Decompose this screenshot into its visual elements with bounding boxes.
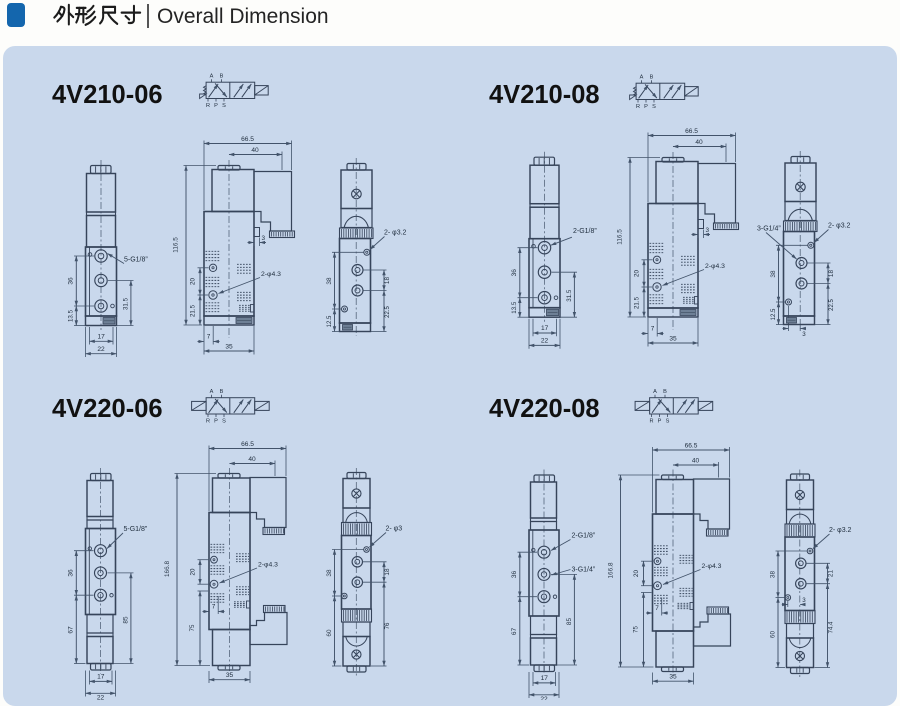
svg-text:36: 36: [511, 571, 518, 579]
svg-text:22: 22: [541, 338, 549, 345]
svg-text:85: 85: [122, 616, 129, 624]
svg-text:21: 21: [827, 570, 834, 578]
svg-text:17: 17: [541, 675, 549, 682]
svg-text:67: 67: [68, 626, 75, 634]
svg-text:40: 40: [692, 458, 700, 465]
svg-text:S: S: [666, 419, 670, 425]
svg-text:17: 17: [98, 334, 106, 341]
svg-text:2-φ4.3: 2-φ4.3: [258, 562, 278, 569]
svg-text:5-G1/8”: 5-G1/8”: [124, 257, 148, 264]
svg-text:38: 38: [326, 277, 333, 285]
svg-text:21.5: 21.5: [190, 304, 197, 317]
svg-text:A: A: [210, 74, 214, 80]
svg-text:3: 3: [262, 235, 266, 242]
svg-text:3-G1/4”: 3-G1/4”: [757, 226, 781, 233]
svg-text:36: 36: [68, 569, 75, 577]
svg-text:P: P: [644, 104, 648, 110]
svg-text:74.4: 74.4: [828, 621, 834, 633]
svg-text:2- φ3.2: 2- φ3.2: [384, 230, 407, 237]
svg-text:P: P: [214, 419, 218, 425]
svg-text:40: 40: [251, 147, 259, 154]
svg-text:18: 18: [828, 270, 835, 278]
svg-text:20: 20: [190, 568, 197, 575]
svg-text:S: S: [222, 419, 226, 425]
svg-text:2-φ4.3: 2-φ4.3: [702, 563, 722, 570]
svg-text:85: 85: [566, 618, 573, 626]
svg-text:R: R: [206, 103, 210, 109]
svg-text:4V210-06: 4V210-06: [52, 81, 163, 109]
svg-text:21.5: 21.5: [634, 296, 641, 309]
svg-text:20: 20: [634, 270, 641, 277]
svg-text:P: P: [214, 103, 218, 109]
svg-text:40: 40: [248, 456, 256, 463]
svg-text:2- φ3.2: 2- φ3.2: [828, 223, 851, 230]
svg-text:22: 22: [540, 696, 548, 700]
svg-text:7: 7: [212, 604, 216, 611]
svg-text:3: 3: [802, 597, 806, 604]
svg-text:3: 3: [802, 331, 806, 338]
svg-text:22.5: 22.5: [385, 306, 391, 318]
svg-text:38: 38: [770, 270, 777, 278]
svg-text:35: 35: [669, 336, 677, 343]
svg-text:116.5: 116.5: [173, 237, 180, 253]
svg-text:R: R: [636, 104, 640, 110]
svg-text:3-G1/4”: 3-G1/4”: [572, 567, 596, 574]
svg-text:22: 22: [97, 695, 105, 701]
svg-text:A: A: [640, 75, 644, 81]
svg-text:38: 38: [769, 571, 776, 579]
svg-text:116.5: 116.5: [617, 229, 624, 245]
svg-text:18: 18: [384, 277, 391, 285]
svg-text:31.5: 31.5: [566, 289, 573, 302]
svg-text:2- φ3.2: 2- φ3.2: [829, 527, 852, 534]
svg-text:75: 75: [633, 626, 640, 633]
svg-text:12.5: 12.5: [327, 315, 333, 327]
svg-text:17: 17: [541, 325, 549, 332]
svg-text:76: 76: [385, 622, 391, 629]
svg-text:66.5: 66.5: [241, 441, 254, 448]
svg-text:166.8: 166.8: [608, 562, 615, 578]
svg-text:S: S: [652, 104, 656, 110]
svg-text:66.5: 66.5: [685, 128, 698, 135]
svg-text:7: 7: [651, 326, 655, 333]
svg-text:B: B: [220, 389, 224, 395]
svg-text:31.5: 31.5: [122, 297, 129, 310]
svg-text:2-G1/8”: 2-G1/8”: [573, 228, 597, 235]
svg-text:75: 75: [189, 624, 196, 631]
svg-text:36: 36: [68, 277, 75, 285]
svg-text:22: 22: [97, 346, 105, 353]
svg-text:22.5: 22.5: [829, 299, 835, 311]
svg-text:20: 20: [190, 278, 197, 285]
svg-text:35: 35: [226, 672, 234, 679]
svg-text:3: 3: [706, 227, 710, 234]
svg-text:P: P: [658, 419, 662, 425]
svg-text:7: 7: [655, 605, 659, 612]
svg-text:R: R: [649, 419, 653, 425]
svg-text:B: B: [220, 74, 224, 80]
svg-text:60: 60: [326, 629, 333, 637]
svg-text:12.5: 12.5: [771, 308, 777, 320]
svg-text:S: S: [222, 103, 226, 109]
svg-text:B: B: [663, 389, 667, 395]
svg-text:2-φ4.3: 2-φ4.3: [261, 271, 281, 278]
svg-text:4V210-08: 4V210-08: [489, 81, 600, 109]
svg-text:17: 17: [97, 674, 105, 681]
svg-text:166.8: 166.8: [164, 561, 171, 577]
svg-text:66.5: 66.5: [241, 136, 254, 143]
svg-text:66.5: 66.5: [685, 443, 698, 450]
svg-text:2-G1/8”: 2-G1/8”: [572, 533, 596, 540]
svg-text:20: 20: [633, 570, 640, 577]
svg-text:4V220-06: 4V220-06: [52, 395, 163, 423]
svg-text:35: 35: [225, 344, 233, 351]
svg-text:B: B: [650, 75, 654, 81]
svg-text:4V220-08: 4V220-08: [489, 395, 600, 423]
svg-text:38: 38: [326, 569, 333, 577]
svg-text:36: 36: [511, 269, 518, 277]
svg-text:A: A: [210, 389, 214, 395]
svg-text:2-φ4.3: 2-φ4.3: [705, 263, 725, 270]
svg-text:60: 60: [769, 631, 776, 639]
svg-text:A: A: [653, 389, 657, 395]
svg-text:7: 7: [207, 334, 211, 341]
svg-text:18: 18: [384, 568, 391, 576]
svg-text:2- φ3: 2- φ3: [386, 526, 403, 533]
svg-text:40: 40: [695, 139, 703, 146]
svg-text:R: R: [206, 419, 210, 425]
svg-text:5-G1/8”: 5-G1/8”: [124, 526, 148, 533]
svg-text:13.5: 13.5: [511, 301, 518, 314]
svg-text:35: 35: [669, 674, 677, 681]
svg-text:13.5: 13.5: [68, 309, 75, 322]
svg-text:67: 67: [511, 628, 518, 636]
